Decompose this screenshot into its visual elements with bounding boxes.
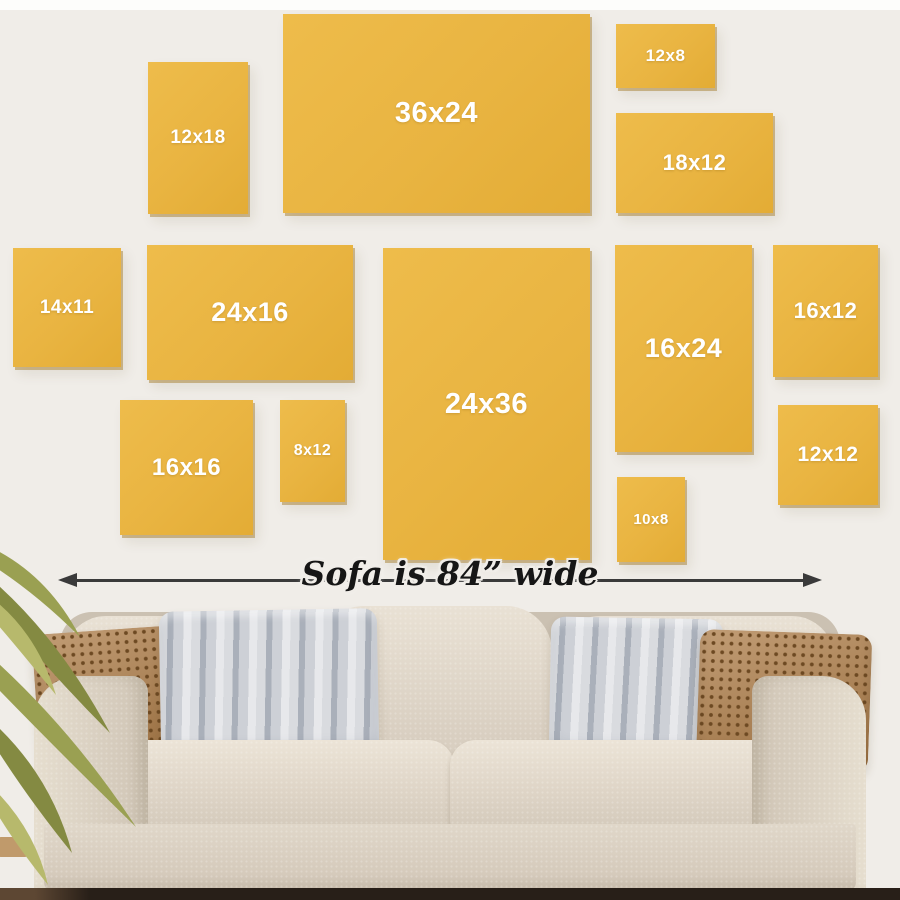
canvas-size-label: 14x11 <box>40 297 94 319</box>
canvas-size-label: 24x36 <box>445 388 528 421</box>
canvas-12x18: 12x18 <box>148 62 248 214</box>
pillow-gray-striped-left <box>159 608 380 760</box>
canvas-size-label: 36x24 <box>395 97 478 130</box>
canvas-8x12: 8x12 <box>280 400 345 502</box>
canvas-36x24: 36x24 <box>283 14 590 213</box>
wall-art-size-guide: 12x1836x2412x818x1214x1124x1624x3616x241… <box>0 0 900 900</box>
canvas-10x8: 10x8 <box>617 477 685 562</box>
sofa-seat-cushion-right <box>450 740 794 836</box>
canvas-24x16: 24x16 <box>147 245 353 380</box>
top-border <box>0 0 900 10</box>
canvas-14x11: 14x11 <box>13 248 121 367</box>
canvas-size-label: 12x8 <box>646 46 686 66</box>
arrow-right-icon <box>803 573 822 587</box>
canvas-16x24: 16x24 <box>615 245 752 452</box>
canvas-size-label: 16x24 <box>645 333 723 364</box>
canvas-size-label: 16x16 <box>152 454 221 482</box>
canvas-16x16: 16x16 <box>120 400 253 535</box>
canvas-size-label: 24x16 <box>211 297 289 328</box>
sofa-width-label: Sofa is 84” wide <box>302 554 599 593</box>
canvas-24x36: 24x36 <box>383 248 590 560</box>
canvas-size-label: 18x12 <box>663 150 727 176</box>
canvas-16x12: 16x12 <box>773 245 878 377</box>
canvas-12x12: 12x12 <box>778 405 878 505</box>
sofa-base <box>44 824 856 892</box>
canvas-18x12: 18x12 <box>616 113 773 213</box>
canvas-12x8: 12x8 <box>616 24 715 88</box>
canvas-size-label: 8x12 <box>294 442 332 460</box>
plant-leaves <box>0 545 158 900</box>
canvas-size-label: 12x12 <box>798 443 859 467</box>
canvas-size-label: 16x12 <box>794 298 858 324</box>
canvas-size-label: 12x18 <box>170 127 225 149</box>
canvas-size-label: 10x8 <box>633 511 668 528</box>
